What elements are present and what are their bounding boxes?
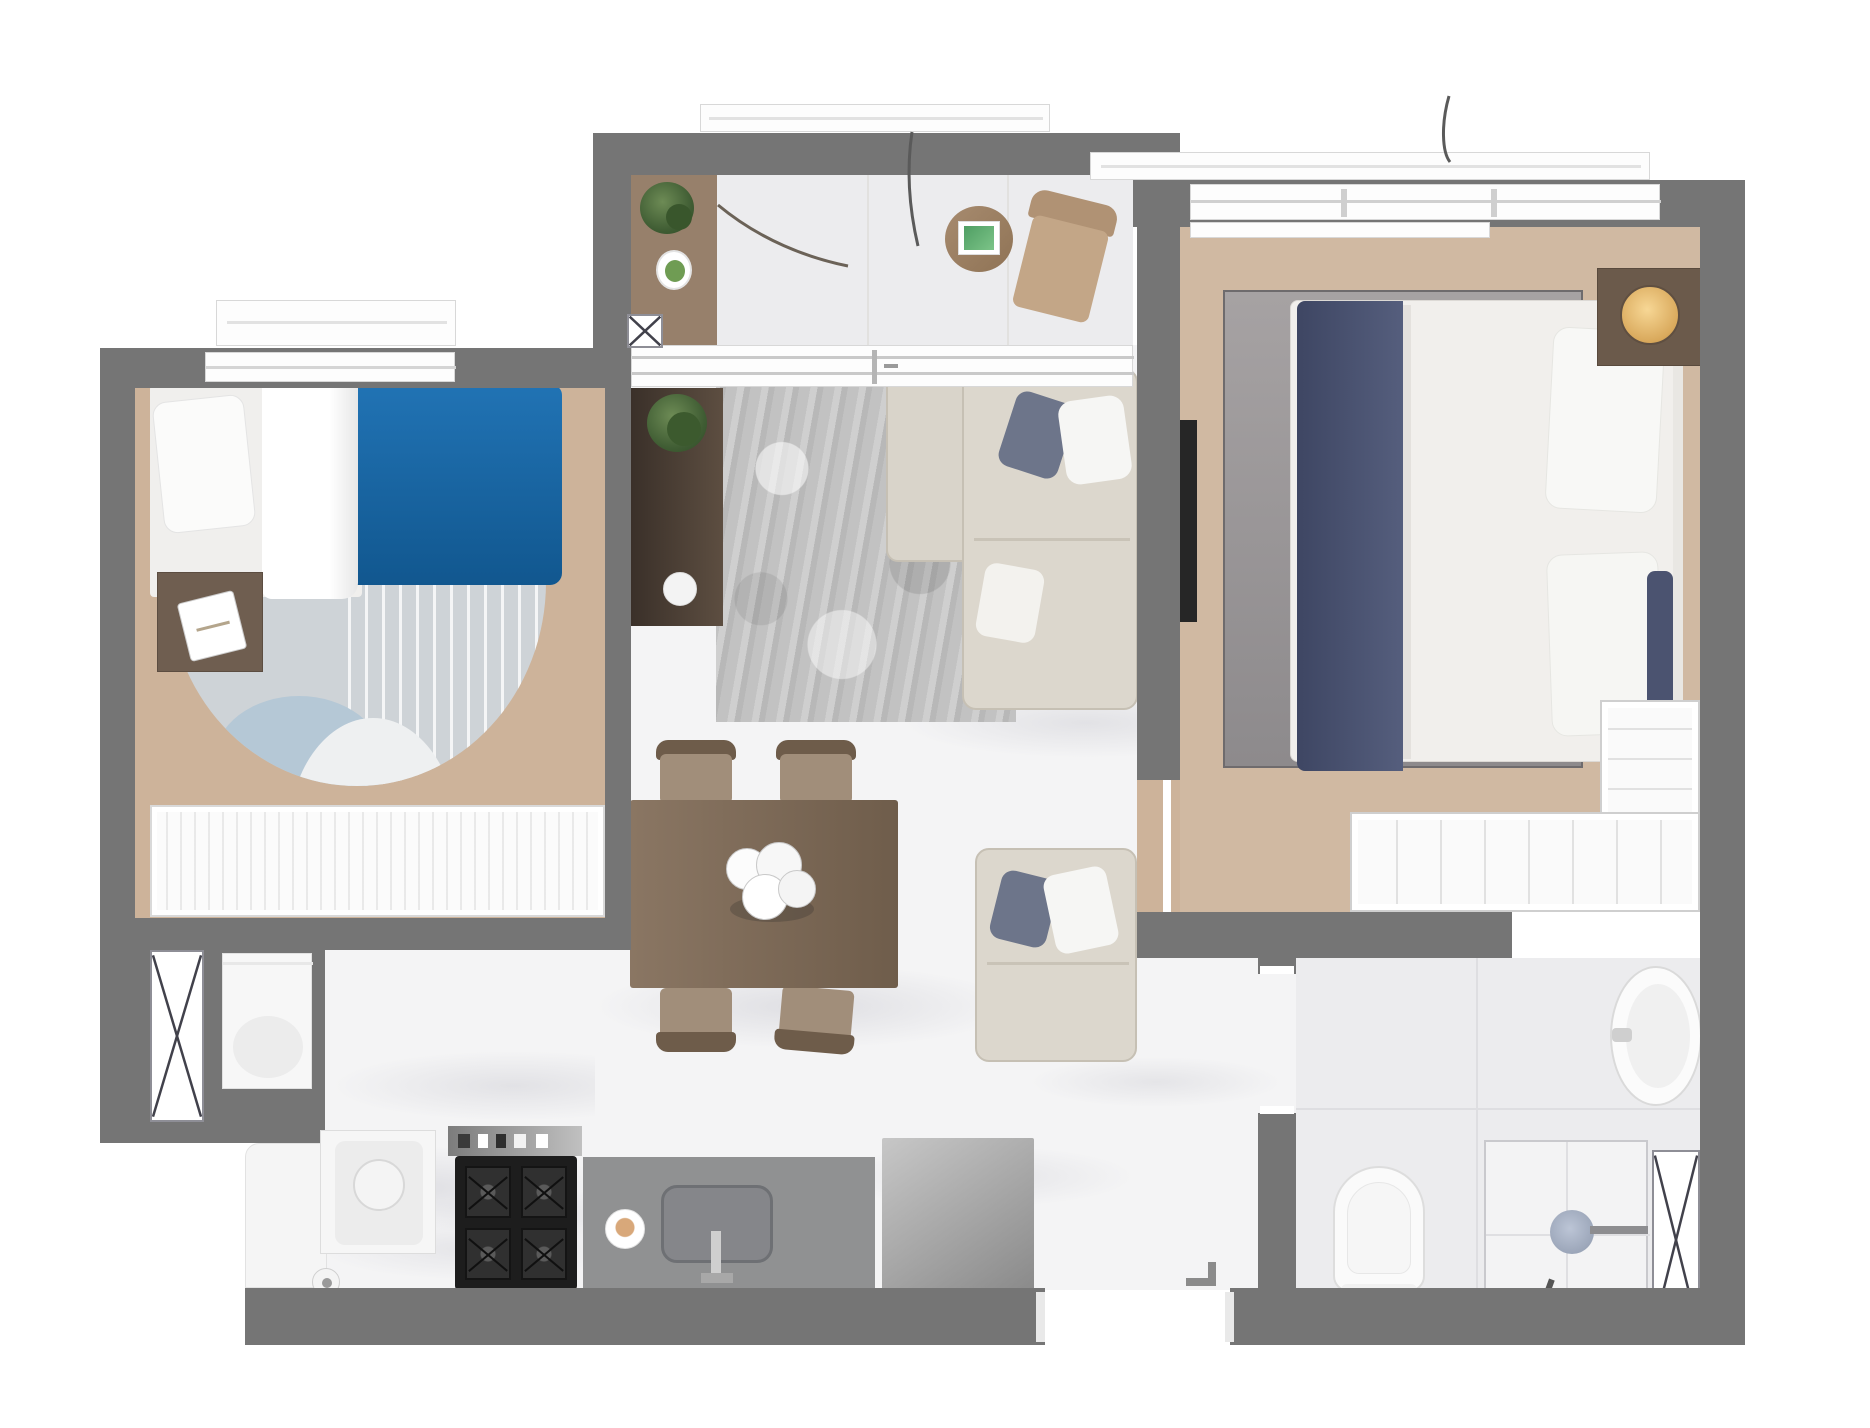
window-line <box>227 321 447 324</box>
master-inner-sill <box>1190 222 1490 238</box>
dining-chair <box>772 740 860 804</box>
bathroom-door-frame <box>1260 1106 1294 1114</box>
armchair <box>975 848 1137 1062</box>
dining-table <box>630 800 898 988</box>
hinge-bar <box>1208 1262 1216 1280</box>
wall <box>1137 912 1512 958</box>
tv-console <box>631 388 723 626</box>
window <box>205 352 455 382</box>
plant-blob <box>666 204 692 230</box>
bathroom-door-frame <box>1260 966 1294 974</box>
wall <box>1258 1113 1296 1291</box>
stove-knob <box>514 1134 526 1148</box>
chair-seat <box>780 754 852 804</box>
window-line <box>206 366 456 369</box>
window <box>1190 184 1660 220</box>
drain-dot <box>322 1278 332 1288</box>
window-sill <box>216 300 456 346</box>
window-line <box>1191 200 1661 203</box>
toilet-seat <box>1347 1182 1411 1274</box>
book-line <box>196 621 230 632</box>
wall <box>245 1288 1045 1345</box>
wall <box>1700 180 1745 1345</box>
faucet-base <box>701 1273 733 1283</box>
balcony-table <box>945 206 1013 272</box>
bed-sheet-line <box>1403 305 1411 759</box>
sink-faucet <box>1612 1028 1632 1042</box>
wardrobe-base-band <box>135 918 605 950</box>
wall <box>605 388 631 950</box>
entry-door-jamb <box>1225 1292 1234 1342</box>
stove-burner <box>465 1228 511 1280</box>
refrigerator <box>882 1138 1034 1290</box>
washing-machine <box>320 1130 436 1254</box>
master-nightstand <box>1597 268 1703 366</box>
single-bed-blue-blanket <box>350 385 562 585</box>
stove-knob <box>458 1134 470 1148</box>
gas-stove <box>455 1156 577 1290</box>
dining-chair <box>652 740 740 804</box>
armchair-seam <box>987 962 1129 965</box>
master-bed <box>1290 300 1682 762</box>
faucet-stem <box>711 1231 721 1279</box>
washer-drum <box>353 1159 405 1211</box>
balcony-sliding-door <box>631 345 1133 387</box>
tile-seam <box>1476 958 1478 1288</box>
hall-wood <box>1137 780 1180 912</box>
chair-seat <box>660 754 732 804</box>
window-sill <box>1090 152 1650 180</box>
window-mullion <box>1341 189 1347 217</box>
table-tray <box>958 221 1000 255</box>
door-divider <box>872 350 877 384</box>
wall <box>593 133 1133 175</box>
tile-seam <box>1007 173 1009 347</box>
window-line <box>709 117 1043 120</box>
stove-control-strip <box>448 1126 582 1156</box>
single-bed-drape <box>262 383 358 599</box>
sofa-pillow-white <box>1056 394 1133 486</box>
bed-navy-runner <box>1297 301 1403 771</box>
tile-seam <box>1296 1108 1700 1110</box>
stove-knob <box>496 1134 506 1148</box>
floor-plan-canvas <box>0 0 1870 1428</box>
dining-chair <box>769 984 862 1055</box>
door-track <box>632 372 1134 375</box>
window-mullion <box>1491 189 1497 217</box>
pot-plant <box>665 260 685 282</box>
bed-pillow <box>151 394 256 535</box>
sofa-pillow-white <box>1041 864 1120 956</box>
utility-basin-cabinet <box>222 953 312 1089</box>
sofa-pillow-white <box>974 561 1046 644</box>
window-sill <box>700 104 1050 132</box>
tray-green-print <box>964 226 994 250</box>
dining-chair <box>652 988 740 1052</box>
shower-head <box>1550 1210 1594 1254</box>
balcony-plant <box>640 182 694 234</box>
chair-seat <box>660 988 732 1038</box>
sofa <box>962 368 1138 710</box>
plate <box>605 1209 645 1249</box>
stove-burner <box>521 1166 567 1218</box>
chair-back <box>656 1032 736 1052</box>
x-mark-icon <box>152 952 202 1120</box>
window-line <box>1101 165 1641 168</box>
console-plant-blob <box>667 412 701 446</box>
stove-burner <box>465 1166 511 1218</box>
master-wardrobe-row <box>1350 812 1700 912</box>
stove-knob <box>478 1134 488 1148</box>
chair-seat <box>1011 214 1109 324</box>
sink-basin <box>1626 984 1690 1088</box>
door-handle <box>884 364 898 368</box>
wall <box>1230 1288 1745 1345</box>
decor-disc <box>663 572 697 606</box>
table-lamp <box>1620 285 1680 345</box>
stove-burner <box>521 1228 567 1280</box>
entry-door-hinge <box>1186 1262 1220 1288</box>
entry-door-jamb <box>1036 1292 1045 1342</box>
wardrobe-bedroom <box>150 805 605 917</box>
duct-shaft <box>150 950 204 1122</box>
wall <box>1137 227 1180 780</box>
headboard <box>1673 311 1683 751</box>
balcony-pot <box>656 250 692 290</box>
basin <box>233 1016 303 1078</box>
tile-seam <box>867 173 869 347</box>
duct-shaft <box>627 314 663 348</box>
flower <box>778 870 816 908</box>
wall <box>100 348 135 1143</box>
sink-counter <box>583 1157 875 1290</box>
cabinet-line <box>223 962 313 965</box>
door-track <box>632 356 1134 359</box>
stove-knob <box>536 1134 548 1148</box>
door-threshold <box>1163 780 1171 912</box>
x-mark-icon <box>629 316 661 346</box>
bathroom-vanity-sink <box>1610 966 1702 1106</box>
sofa-seam <box>974 538 1130 541</box>
kitchen-corner-cabinet <box>245 1143 327 1288</box>
shower-arm <box>1590 1226 1648 1234</box>
